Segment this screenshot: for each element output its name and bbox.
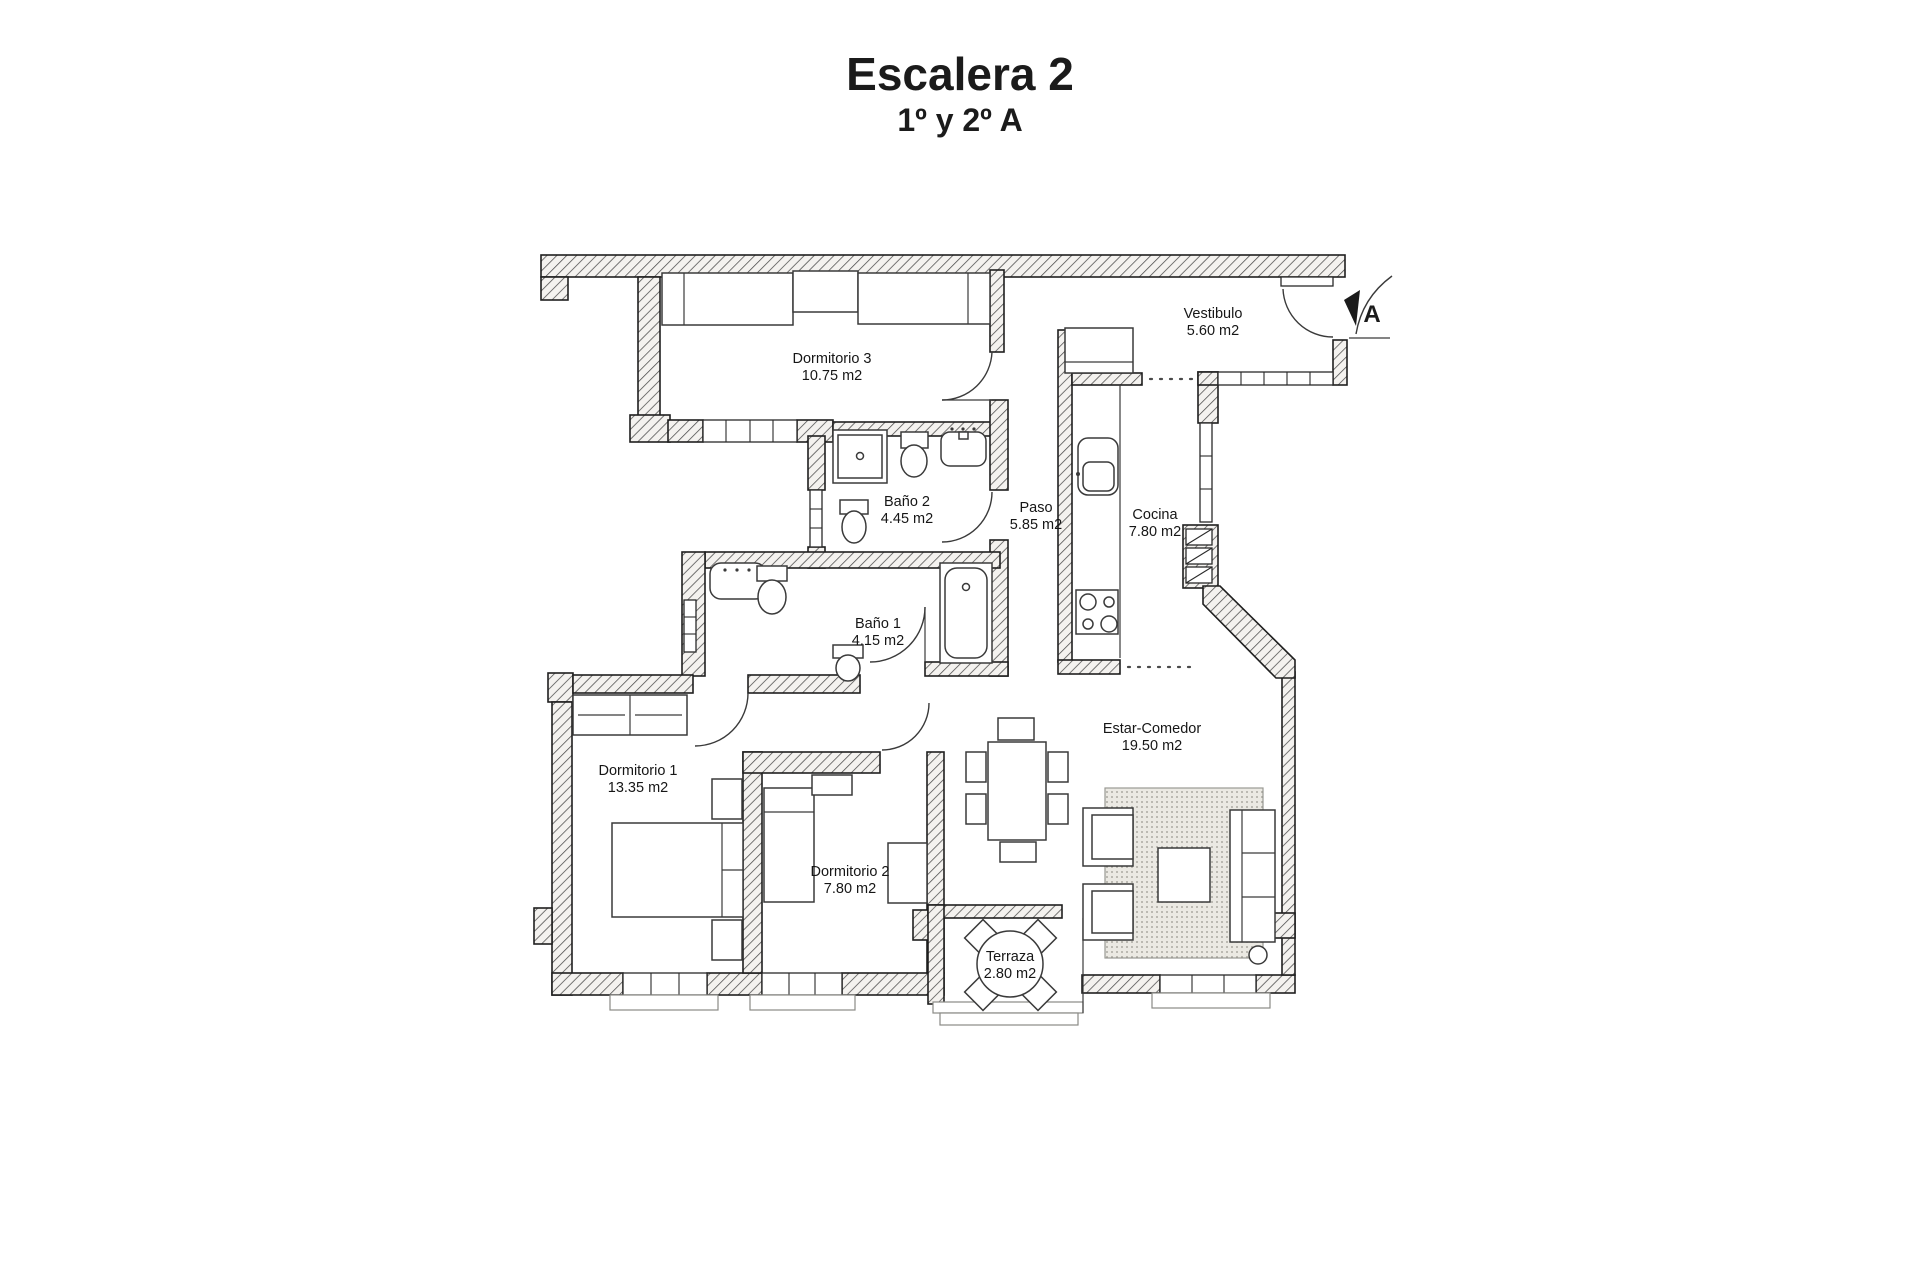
room-label-bano2-area: 4.45 m2 bbox=[881, 511, 933, 527]
wall-dorm3-left bbox=[638, 277, 660, 417]
window-dorm1 bbox=[623, 973, 707, 995]
chair-icon bbox=[966, 752, 986, 782]
dorm1-furniture bbox=[573, 695, 743, 960]
window-estar bbox=[1160, 975, 1256, 993]
wall-terraza-top bbox=[928, 905, 1062, 918]
dining-table-icon bbox=[988, 742, 1046, 840]
wall-cocina-left bbox=[1058, 330, 1072, 662]
stove-icon bbox=[1076, 590, 1118, 634]
closet-vestibulo bbox=[1218, 372, 1333, 385]
room-label-bano2-name: Baño 2 bbox=[884, 494, 930, 510]
single-bed-icon bbox=[764, 788, 814, 902]
room-label-cocina-name: Cocina bbox=[1132, 507, 1178, 523]
sill-dorm1 bbox=[610, 995, 718, 1010]
wall-hall-corner bbox=[548, 673, 573, 702]
entrance-door-arc bbox=[1283, 289, 1333, 337]
wall-left-pilaster bbox=[534, 908, 552, 944]
room-label-terraza-name: Terraza bbox=[986, 949, 1035, 965]
door-arc-dorm1 bbox=[695, 693, 748, 746]
terraza-furniture bbox=[965, 920, 1057, 1011]
room-label-bano1-area: 4.15 m2 bbox=[852, 633, 904, 649]
chair-icon bbox=[1048, 752, 1068, 782]
nightstand-icon bbox=[793, 271, 858, 312]
wall-dorm2-right-pilaster bbox=[913, 910, 929, 940]
wall-cocina-bottom bbox=[1058, 660, 1120, 674]
sill-estar bbox=[1152, 993, 1270, 1008]
kitchen-sink-icon bbox=[1076, 438, 1118, 495]
bano1-fixtures bbox=[710, 563, 992, 681]
sofa-icon bbox=[1230, 810, 1275, 942]
shower-icon bbox=[833, 430, 887, 483]
wall-dorm-divider bbox=[743, 752, 762, 973]
twin-bed-icon bbox=[858, 273, 990, 324]
wall-dorm3-sw-corner bbox=[630, 415, 670, 442]
bathtub-icon bbox=[940, 563, 992, 663]
entrance-door bbox=[1281, 277, 1333, 337]
wall-dorm2-top bbox=[743, 752, 880, 773]
window-bano2 bbox=[810, 490, 822, 547]
shelf-icon bbox=[812, 775, 852, 795]
wall-vestibulo-pillar bbox=[1198, 372, 1218, 385]
armchair-icon bbox=[1083, 808, 1133, 866]
wall-bano-right-upper bbox=[990, 400, 1008, 490]
room-label-dormitorio1-name: Dormitorio 1 bbox=[599, 763, 678, 779]
page-subtitle: 1º y 2º A bbox=[897, 102, 1022, 138]
terraza-railing bbox=[933, 1002, 1083, 1013]
nightstand-icon bbox=[712, 920, 742, 960]
chair-icon bbox=[998, 718, 1034, 740]
wall-cocina-angled bbox=[1203, 586, 1295, 678]
sill-dorm2 bbox=[750, 995, 855, 1010]
room-label-dormitorio2-name: Dormitorio 2 bbox=[811, 864, 890, 880]
wall-bottom-b bbox=[707, 973, 762, 995]
shelf-unit-icon bbox=[1186, 529, 1212, 583]
estar-furniture bbox=[966, 718, 1275, 964]
wall-dorm1-left bbox=[552, 702, 572, 995]
twin-bed-icon bbox=[662, 273, 793, 325]
bidet-icon bbox=[833, 645, 863, 681]
wall-dorm3-bottom-a bbox=[668, 420, 703, 442]
toilet-icon bbox=[901, 432, 928, 477]
wardrobe-icon bbox=[573, 695, 687, 735]
window-bano1 bbox=[684, 600, 696, 652]
room-label-estar-area: 19.50 m2 bbox=[1122, 738, 1182, 754]
window-dorm2 bbox=[762, 973, 842, 995]
wall-bottom-a bbox=[552, 973, 623, 995]
room-label-paso-area: 5.85 m2 bbox=[1010, 517, 1062, 533]
page-title: Escalera 2 bbox=[846, 48, 1074, 100]
armchair-icon bbox=[1083, 884, 1133, 940]
sink-icon bbox=[941, 427, 986, 466]
entrance-marker: A bbox=[1344, 276, 1392, 338]
chair-icon bbox=[1048, 794, 1068, 824]
toilet-icon bbox=[757, 566, 787, 614]
room-label-dormitorio3-name: Dormitorio 3 bbox=[793, 351, 872, 367]
coffee-table-icon bbox=[1158, 848, 1210, 902]
window-dorm3 bbox=[703, 420, 797, 442]
chair-icon bbox=[1000, 842, 1036, 862]
desk-icon bbox=[888, 843, 927, 903]
door-arc-dorm3 bbox=[942, 352, 992, 400]
wall-bano2-left-upper bbox=[808, 436, 825, 490]
floorplan-page: A Escalera 2 1º y 2º A Dormitorio 3 10.7… bbox=[0, 0, 1920, 1280]
window-cocina bbox=[1200, 423, 1212, 522]
wall-top-left-step bbox=[541, 277, 568, 300]
room-label-vestibulo-name: Vestibulo bbox=[1184, 306, 1243, 322]
chair-icon bbox=[966, 794, 986, 824]
room-label-estar-name: Estar-Comedor bbox=[1103, 721, 1201, 737]
wall-entrance-jamb bbox=[1333, 340, 1347, 385]
wall-cocina-band bbox=[1072, 373, 1142, 385]
nightstand-icon bbox=[712, 779, 742, 819]
terraza-railing-outer bbox=[940, 1013, 1078, 1025]
room-label-bano1-name: Baño 1 bbox=[855, 616, 901, 632]
entrance-door-leaf bbox=[1281, 277, 1333, 286]
room-label-terraza-area: 2.80 m2 bbox=[984, 966, 1036, 982]
room-label-dormitorio3-area: 10.75 m2 bbox=[802, 368, 862, 384]
wall-terraza-left bbox=[928, 905, 944, 1004]
room-label-cocina-area: 7.80 m2 bbox=[1129, 524, 1181, 540]
room-label-paso-name: Paso bbox=[1019, 500, 1052, 516]
wall-dorm3-right-upper bbox=[990, 270, 1004, 352]
room-label-vestibulo-area: 5.60 m2 bbox=[1187, 323, 1239, 339]
side-table-icon bbox=[1249, 946, 1267, 964]
wall-estar-bottom-b bbox=[1256, 975, 1295, 993]
wall-hall-north-a bbox=[573, 675, 693, 693]
wall-estar-bottom-a bbox=[1082, 975, 1160, 993]
entrance-marker-arrow-icon bbox=[1344, 290, 1360, 326]
dorm3-furniture bbox=[662, 271, 990, 325]
room-label-dormitorio1-area: 13.35 m2 bbox=[608, 780, 668, 796]
door-arc-bano2 bbox=[942, 492, 992, 542]
bidet-icon bbox=[840, 500, 868, 543]
fridge-icon bbox=[1065, 328, 1133, 373]
room-label-dormitorio2-area: 7.80 m2 bbox=[824, 881, 876, 897]
door-arc-dorm2 bbox=[882, 703, 929, 750]
entrance-marker-letter: A bbox=[1363, 301, 1380, 328]
wall-bano1-bottom-right bbox=[925, 662, 1008, 676]
floorplan-drawing: A Escalera 2 1º y 2º A Dormitorio 3 10.7… bbox=[0, 0, 1920, 1280]
